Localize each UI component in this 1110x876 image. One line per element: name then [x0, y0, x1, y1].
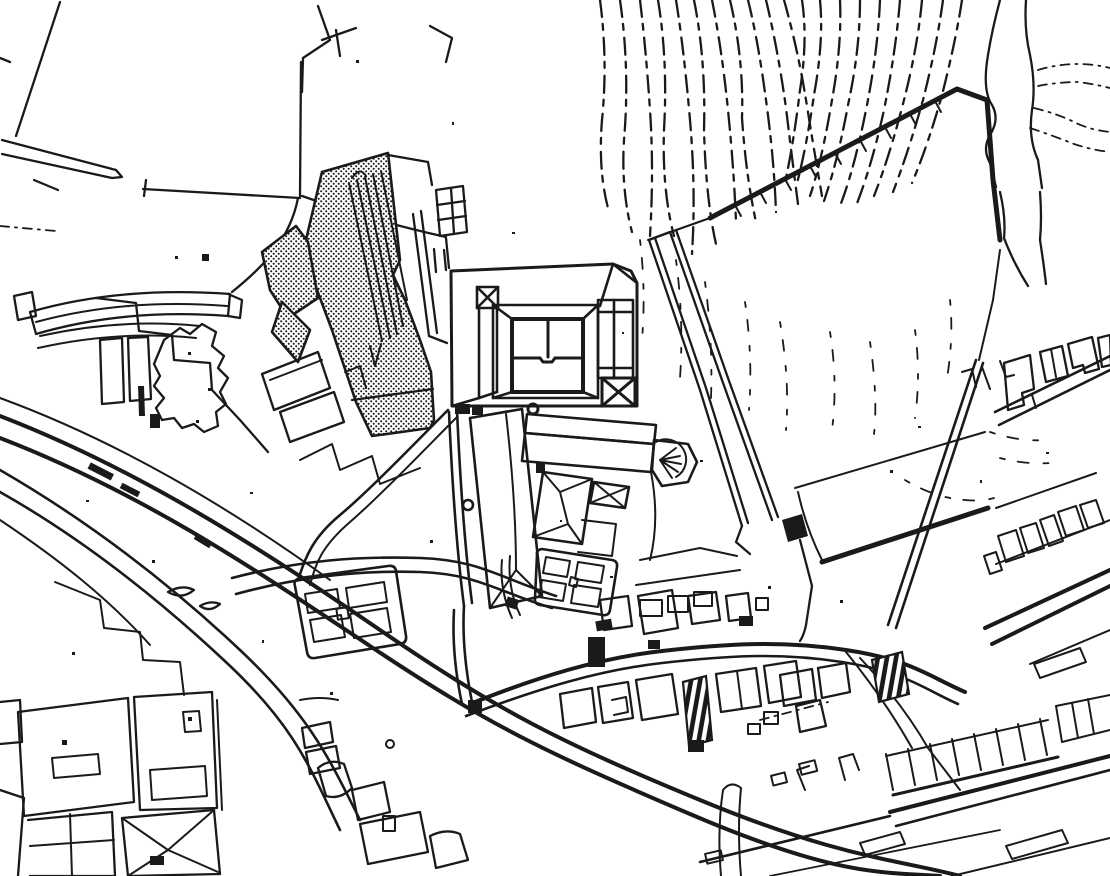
- access-ramp: [649, 230, 988, 641]
- contour-lines: [600, 0, 1060, 501]
- boundary-wall: [648, 89, 1000, 240]
- castle-complex: [451, 264, 637, 415]
- stippled-building: [262, 153, 447, 436]
- stream: [986, 0, 1110, 286]
- town-blocks-southwest: [0, 582, 222, 876]
- site-plan-drawing: [0, 0, 1110, 876]
- town-blocks: [434, 186, 467, 272]
- site-plan-map: [0, 0, 1110, 876]
